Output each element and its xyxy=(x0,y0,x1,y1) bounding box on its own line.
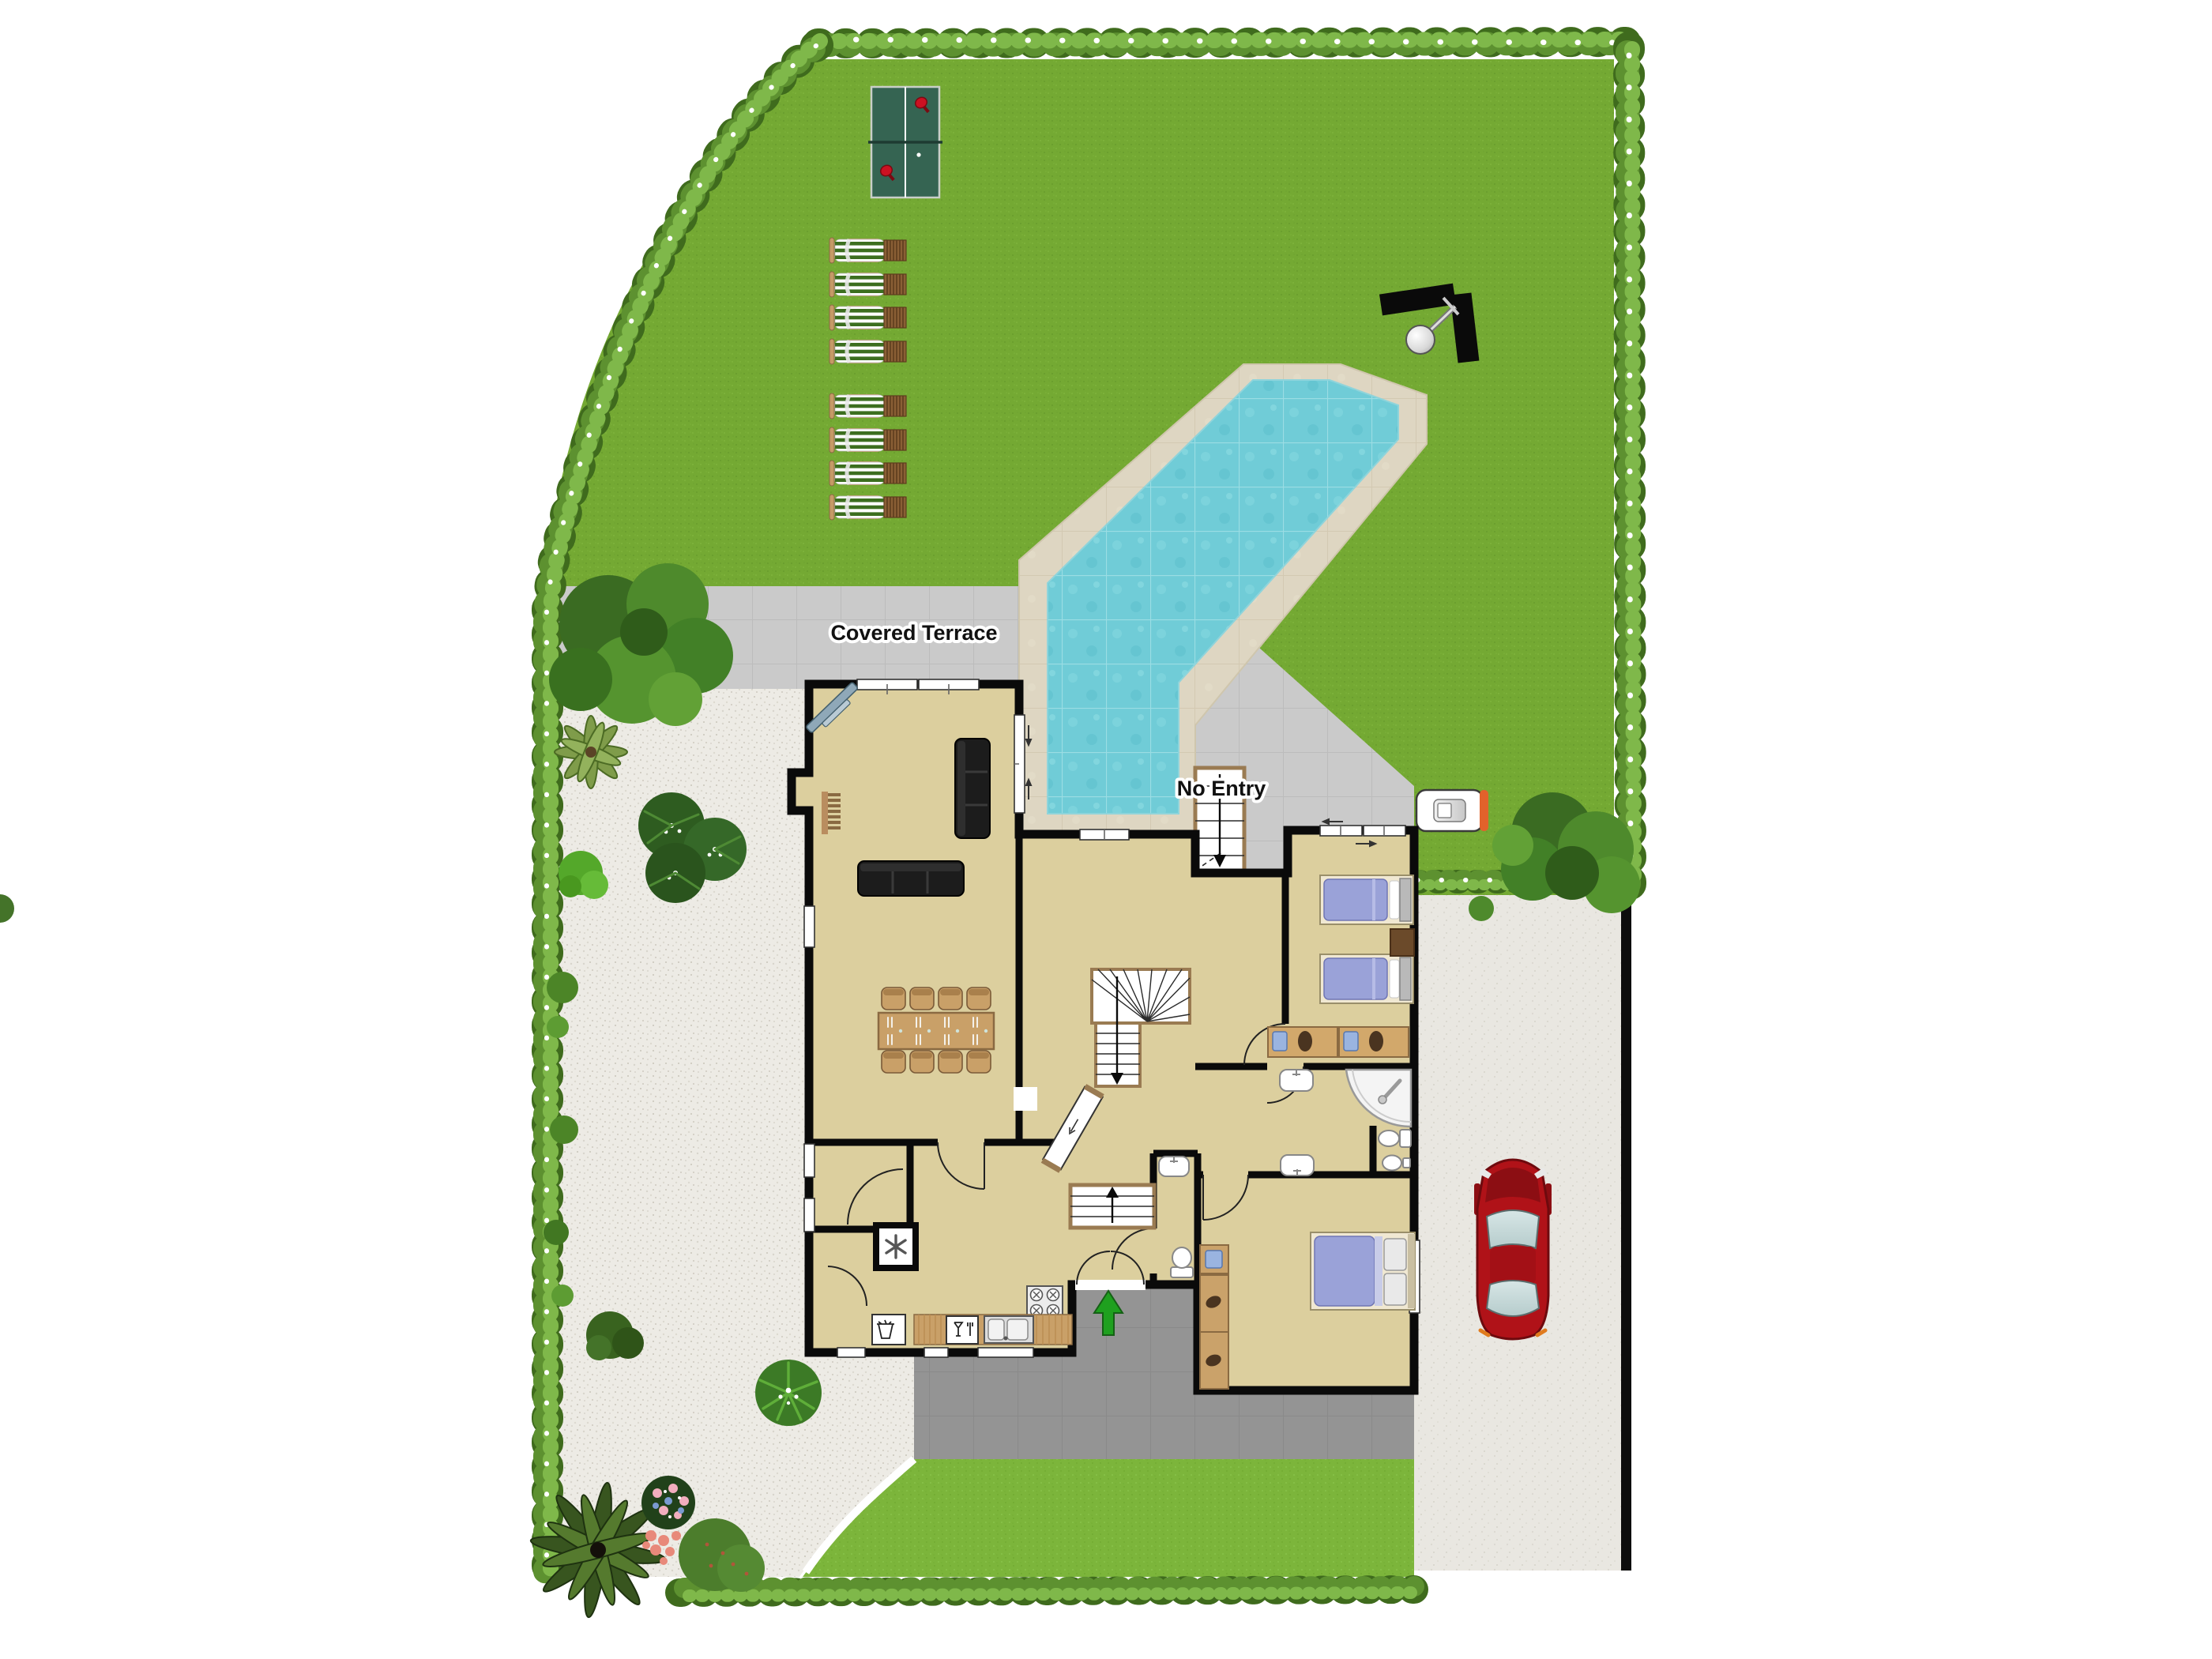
floor-plan-svg: Covered Terrace No Entry xyxy=(0,0,2212,1659)
wc-toilet xyxy=(1171,1247,1193,1277)
intercom-unit xyxy=(1416,790,1488,831)
bidet xyxy=(1382,1156,1410,1171)
sofa-horizontal xyxy=(858,861,964,896)
hedge-right xyxy=(1627,47,1634,890)
dishwasher xyxy=(946,1316,978,1344)
kitchen-sink xyxy=(984,1316,1033,1343)
boundary-wall-line xyxy=(1621,885,1631,1571)
wardrobe xyxy=(1200,1275,1228,1389)
nightstand xyxy=(1390,929,1414,956)
no-entry-label: No Entry xyxy=(1177,777,1266,800)
wc-sink xyxy=(1159,1157,1189,1176)
entry-stairs xyxy=(1070,1185,1154,1228)
floor-plan-canvas: Covered Terrace No Entry xyxy=(0,0,2212,1659)
flower-bed-pink-blue xyxy=(641,1476,695,1529)
hedge-bottom xyxy=(679,1586,1414,1596)
sofa-vertical xyxy=(955,739,990,838)
red-car xyxy=(1474,1160,1552,1339)
covered-terrace-label: Covered Terrace xyxy=(830,621,997,645)
ball-icon xyxy=(916,152,920,156)
table-tennis-table xyxy=(868,87,942,197)
wall-recess xyxy=(1014,1087,1037,1111)
desk-2 xyxy=(1339,1027,1409,1057)
hedge-top xyxy=(818,39,1626,45)
palm-plant-left xyxy=(555,716,627,788)
double-bed xyxy=(1311,1232,1415,1310)
bathroom-sink xyxy=(1280,1070,1313,1091)
washing-machine xyxy=(872,1315,905,1345)
agave-with-flowers xyxy=(755,1360,822,1426)
toilet xyxy=(1379,1130,1411,1147)
shower-head-icon xyxy=(1406,325,1435,354)
bedroom-desk xyxy=(1200,1245,1228,1273)
bathroom-sink-2 xyxy=(1281,1155,1314,1176)
desk-1 xyxy=(1268,1027,1337,1057)
